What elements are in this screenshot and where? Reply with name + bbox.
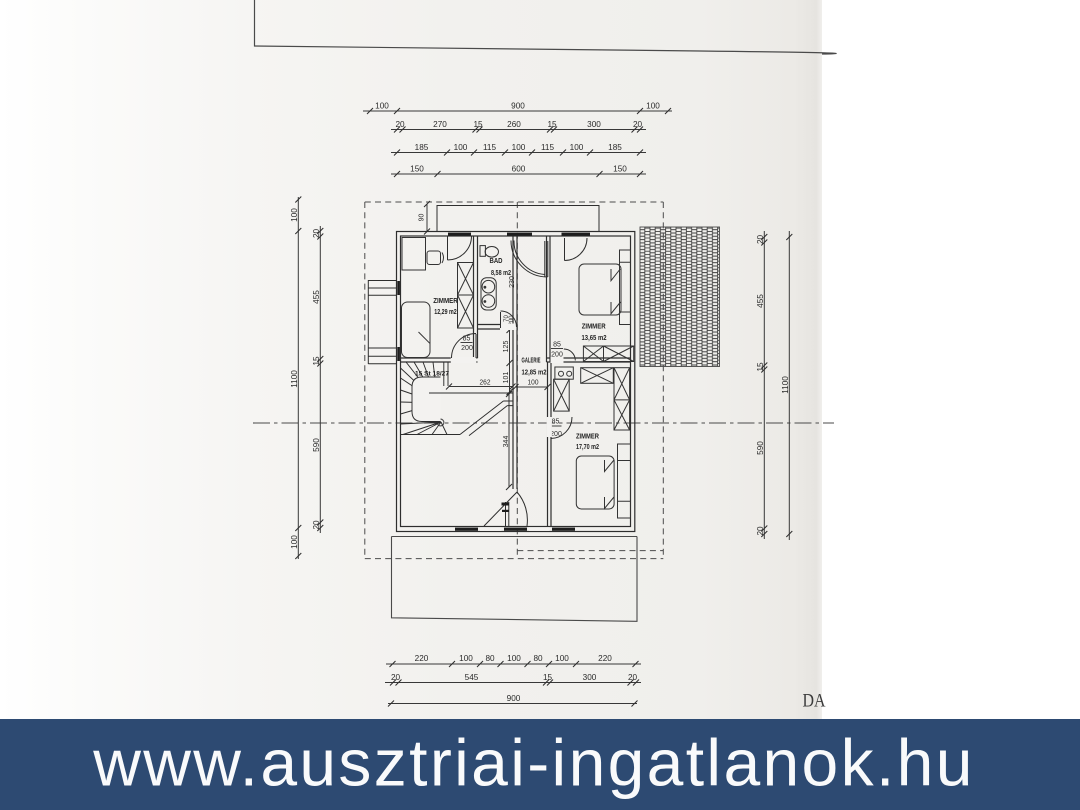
svg-text:15 St 18/27: 15 St 18/27: [415, 370, 449, 377]
svg-text:1100: 1100: [781, 376, 790, 394]
svg-text:20: 20: [633, 120, 643, 129]
svg-text:200: 200: [461, 345, 473, 352]
svg-text:260: 260: [507, 120, 521, 129]
svg-text:115: 115: [483, 143, 496, 152]
svg-text:12,85 m2: 12,85 m2: [522, 368, 547, 377]
svg-text:20: 20: [391, 673, 401, 682]
svg-text:15: 15: [473, 120, 483, 129]
svg-text:ZIMMER: ZIMMER: [576, 431, 600, 440]
svg-text:12,29 m2: 12,29 m2: [434, 307, 457, 316]
svg-text:20: 20: [628, 673, 638, 682]
svg-text:455: 455: [312, 290, 321, 304]
svg-text:8,58 m2: 8,58 m2: [491, 268, 511, 277]
svg-text:20: 20: [395, 120, 405, 129]
svg-text:20: 20: [756, 235, 765, 245]
svg-text:100: 100: [507, 654, 521, 663]
svg-text:150: 150: [613, 165, 627, 174]
svg-text:270: 270: [433, 120, 447, 129]
svg-text:15: 15: [312, 356, 321, 366]
svg-text:GALERIE: GALERIE: [522, 356, 541, 365]
svg-text:185: 185: [608, 143, 622, 152]
svg-text:455: 455: [756, 294, 765, 308]
svg-text:100: 100: [570, 143, 584, 152]
svg-text:20: 20: [312, 520, 321, 530]
svg-text:300: 300: [583, 673, 597, 682]
svg-text:545: 545: [465, 673, 479, 682]
svg-text:100: 100: [555, 654, 569, 663]
svg-text:ZIMMER: ZIMMER: [582, 321, 607, 330]
svg-text:15: 15: [547, 120, 557, 129]
svg-text:101: 101: [503, 372, 510, 384]
svg-text:150: 150: [410, 165, 424, 174]
svg-text:100: 100: [290, 535, 299, 549]
svg-text:20: 20: [756, 526, 765, 536]
svg-text:262: 262: [480, 379, 491, 386]
svg-text:100: 100: [454, 143, 468, 152]
svg-text:220: 220: [598, 654, 612, 663]
svg-text:344: 344: [503, 436, 510, 448]
svg-text:300: 300: [587, 120, 601, 129]
svg-text:90: 90: [419, 214, 426, 222]
svg-text:17,70 m2: 17,70 m2: [576, 442, 599, 451]
svg-text:15: 15: [756, 362, 765, 372]
svg-text:900: 900: [507, 694, 521, 703]
svg-text:185: 185: [415, 143, 429, 152]
svg-text:100: 100: [512, 143, 526, 152]
svg-text:85: 85: [553, 342, 561, 349]
svg-text:80: 80: [485, 654, 495, 663]
svg-text:100: 100: [646, 102, 660, 111]
svg-text:100: 100: [528, 379, 539, 386]
svg-text:BAD: BAD: [490, 256, 503, 265]
svg-text:100: 100: [459, 654, 473, 663]
svg-text:115: 115: [541, 143, 554, 152]
svg-text:20: 20: [312, 229, 321, 239]
svg-text:200: 200: [550, 431, 562, 438]
svg-text:900: 900: [511, 102, 525, 111]
svg-text:1100: 1100: [290, 370, 299, 388]
svg-text:ZIMMER: ZIMMER: [433, 296, 458, 305]
svg-text:80: 80: [533, 654, 543, 663]
svg-text:DA: DA: [803, 691, 826, 712]
svg-text:125: 125: [503, 341, 510, 353]
svg-text:100: 100: [290, 208, 299, 222]
svg-text:13,65 m2: 13,65 m2: [582, 333, 607, 342]
svg-text:590: 590: [312, 438, 321, 452]
svg-text:85: 85: [552, 419, 560, 426]
svg-text:590: 590: [756, 441, 765, 455]
svg-text:600: 600: [512, 165, 526, 174]
svg-text:15: 15: [543, 673, 553, 682]
svg-text:220: 220: [415, 654, 429, 663]
svg-text:100: 100: [375, 102, 389, 111]
